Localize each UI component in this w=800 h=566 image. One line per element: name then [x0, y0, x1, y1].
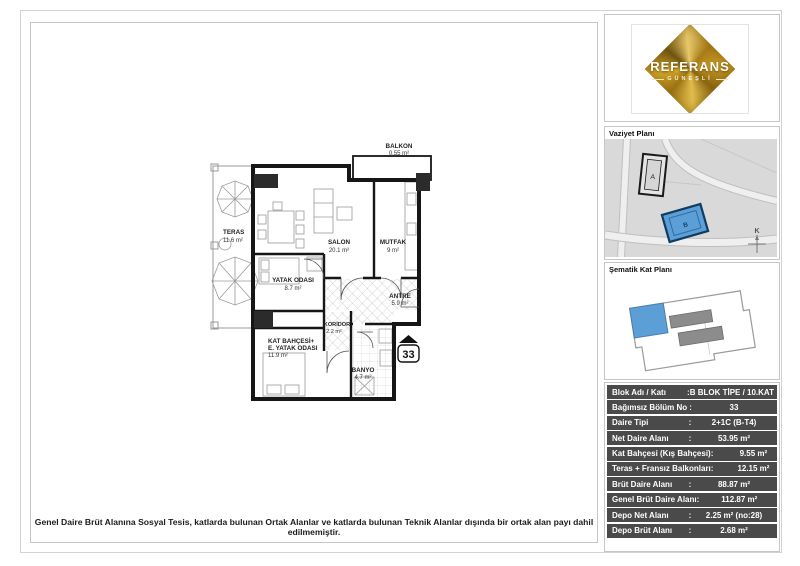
schematic-panel: Şematik Kat Planı: [604, 262, 780, 380]
balkon-label: BALKON: [386, 143, 413, 150]
antre-label: ANTRE: [389, 293, 411, 300]
table-row: Brüt Daire Alanı:88.87 m²: [607, 477, 777, 491]
unit-number: 33: [402, 349, 414, 361]
floor-plan-panel: TERAS 11.6 m² SALON 20.1 m² MUTFAK 9 m² …: [30, 22, 598, 543]
row-separator: :: [686, 434, 694, 443]
row-label: Daire Tipi: [607, 418, 686, 427]
row-label: Bağımsız Bölüm No: [607, 403, 687, 412]
row-value: 33: [694, 403, 777, 412]
teras-structure: [211, 164, 258, 329]
banyo-floor-tiles: [353, 326, 392, 397]
info-table-panel: Blok Adı / Katı:B BLOK TİPE / 10.KAT Bağ…: [604, 382, 780, 552]
table-row: Bağımsız Bölüm No:33: [607, 400, 777, 414]
rule-left: [652, 79, 664, 80]
unit-number-badge: 33: [398, 335, 419, 362]
site-plan-title: Vaziyet Planı: [609, 129, 654, 138]
table-row: Depo Brüt Alanı:2.68 m²: [607, 524, 777, 538]
yatak-odasi-area: 8.7 m²: [284, 286, 301, 292]
row-separator: :: [687, 403, 694, 412]
teras-label: TERAS: [223, 229, 244, 236]
table-row: Kat Bahçesi (Kış Bahçesi):9.55 m²: [607, 447, 777, 461]
schematic-drawing: [605, 275, 777, 377]
footer-note: Genel Daire Brüt Alanına Sosyal Tesis, k…: [31, 517, 597, 537]
mutfak-area: 9 m²: [387, 248, 399, 254]
yatak-odasi-label: YATAK ODASI: [272, 277, 314, 284]
row-value: 112.87 m²: [699, 495, 782, 504]
floor-plan-sheet: TERAS 11.6 m² SALON 20.1 m² MUTFAK 9 m² …: [0, 0, 800, 566]
row-label: Kat Bahçesi (Kış Bahçesi): [607, 449, 711, 458]
row-value: 53.95 m²: [694, 434, 777, 443]
row-value: 12.15 m²: [713, 464, 796, 473]
logo-image: REFERANS GÜNEŞLİ: [631, 24, 749, 114]
highlighted-unit: [630, 303, 668, 338]
logo-subtitle: GÜNEŞLİ: [632, 76, 748, 82]
hall-floor-hatch: [352, 310, 394, 324]
kat-bahcesi-area: 11.9 m²: [268, 353, 288, 359]
site-plan-panel: Vaziyet Planı A B: [604, 126, 780, 260]
row-label: Depo Net Alanı: [607, 511, 686, 520]
table-row: Net Daire Alanı:53.95 m²: [607, 431, 777, 445]
table-row: Depo Net Alanı:2.25 m² (no:28): [607, 508, 777, 522]
north-label: K: [754, 228, 759, 235]
banyo-area: 4.7 m²: [354, 375, 371, 381]
koridor-area: 2.2 m²: [326, 329, 342, 335]
row-separator: :: [686, 480, 694, 489]
balkon-area: 0.55 m²: [389, 151, 409, 157]
kat-bahcesi-label-2: E. YATAK ODASI: [268, 345, 318, 352]
schematic-title: Şematik Kat Planı: [609, 265, 672, 274]
mutfak-label: MUTFAK: [380, 239, 407, 246]
row-value: 2.68 m²: [694, 526, 777, 535]
north-arrow-icon: [399, 335, 418, 343]
schematic-floor-outline: [630, 290, 757, 372]
kat-bahcesi-furniture: [263, 353, 305, 396]
table-row: Daire Tipi:2+1C (B-T4): [607, 416, 777, 430]
salon-area: 20.1 m²: [329, 248, 349, 254]
logo-name: REFERANS: [632, 59, 748, 74]
kat-bahcesi-label-1: KAT BAHÇESİ+: [268, 337, 315, 345]
logo-panel: REFERANS GÜNEŞLİ: [604, 14, 780, 122]
table-row: Genel Brüt Daire Alanı:112.87 m²: [607, 493, 777, 507]
info-table: Blok Adı / Katı:B BLOK TİPE / 10.KAT Bağ…: [607, 385, 777, 539]
row-separator: :: [686, 526, 694, 535]
salon-label: SALON: [328, 239, 350, 246]
koridor-label: KORİDOR: [324, 321, 350, 328]
floor-plan-drawing: TERAS 11.6 m² SALON 20.1 m² MUTFAK 9 m² …: [31, 23, 597, 542]
mutfak-furniture: [405, 182, 418, 270]
banyo-label: BANYO: [352, 367, 375, 374]
row-value: 9.55 m²: [713, 449, 796, 458]
row-value: :B BLOK TİPE / 10.KAT: [687, 388, 777, 397]
umbrella-icon: [217, 181, 253, 217]
table-row: Teras + Fransız Balkonları:12.15 m²: [607, 462, 777, 476]
site-plan-drawing: A B K: [605, 139, 777, 257]
antre-area: 5.9 m²: [391, 301, 408, 307]
table-row: Blok Adı / Katı:B BLOK TİPE / 10.KAT: [607, 385, 777, 399]
rule-right: [716, 79, 728, 80]
row-label: Genel Brüt Daire Alanı: [607, 495, 697, 504]
row-value: 88.87 m²: [694, 480, 777, 489]
row-label: Teras + Fransız Balkonları: [607, 464, 711, 473]
row-value: 2+1C (B-T4): [694, 418, 777, 427]
logo-subtitle-text: GÜNEŞLİ: [667, 76, 712, 82]
row-separator: :: [686, 511, 694, 520]
row-label: Blok Adı / Katı: [607, 388, 679, 397]
building-a: A: [639, 154, 667, 196]
row-label: Depo Brüt Alanı: [607, 526, 686, 535]
row-separator: :: [686, 418, 694, 427]
row-label: Net Daire Alanı: [607, 434, 686, 443]
row-label: Brüt Daire Alanı: [607, 480, 686, 489]
teras-area: 11.6 m²: [223, 238, 243, 244]
logo-text: REFERANS GÜNEŞLİ: [632, 59, 748, 82]
row-value: 2.25 m² (no:28): [694, 511, 777, 520]
